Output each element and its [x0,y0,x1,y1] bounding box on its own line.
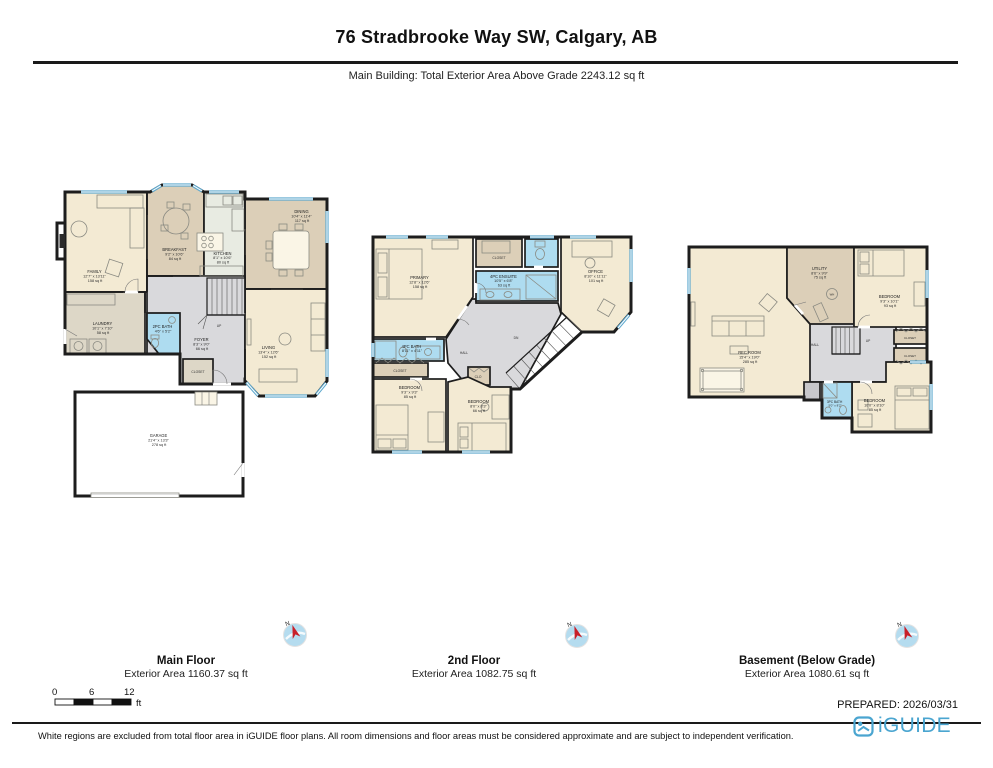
label-up: UP [217,324,222,328]
label-3pc-bath: 3PC BATH 5'0" x 8'2" [827,400,843,408]
footer-divider [12,722,981,724]
label-closet: CLOSET [191,370,204,374]
room-living [245,289,327,396]
compass-n-label: N [897,622,903,629]
page-title: 76 Stradbrooke Way SW, Calgary, AB [0,27,993,48]
second-floor-plan: PRIMARY 12'8" x 12'6" 158 sq ft CLOSET 4… [370,227,640,469]
label-clo: CLO [475,375,482,379]
label-bsmt-hall: HALL [811,343,819,347]
firebox [60,234,66,248]
compass-basement: N [892,620,922,650]
floor-area: Exterior Area 1080.61 sq ft [687,668,927,680]
label-bsmt-closet-1: CLOSET [904,336,916,340]
label-4pc-bath: 4PC BATH 8'11" x 4'11" [402,344,423,353]
main-floor-caption: Main Floor Exterior Area 1160.37 sq ft [66,655,306,680]
disclaimer-text: White regions are excluded from total fl… [38,731,794,741]
room-bsmt-bedroom-ne [854,247,927,327]
compass-main-floor: N [280,619,310,649]
label-utility: UTILITY 8'6" x 9'9" 75 sq ft [811,266,829,280]
main-floor-plan: FAMILY 12'7" x 13'11" 158 sq ft BREAKFAS… [55,181,333,501]
floor-area: Exterior Area 1160.37 sq ft [66,668,306,680]
floor-area: Exterior Area 1082.75 sq ft [354,668,594,680]
scale-tick-12: 12 [124,687,135,698]
label-bsmt-closet-2: CLOSET [904,354,916,358]
room-breakfast [147,185,204,276]
prepared-date: PREPARED: 2026/03/31 [837,699,958,711]
floor-name: 2nd Floor [354,655,594,667]
iguide-logo-text: iGUIDE [878,714,951,738]
scale-tick-0: 0 [52,687,57,698]
floorplan-sheet: 76 Stradbrooke Way SW, Calgary, AB Main … [0,0,993,768]
room-stair-closet [804,382,820,400]
page-subtitle: Main Building: Total Exterior Area Above… [0,70,993,82]
label-foyer: FOYER 8'3" x 9'0" 66 sq ft [193,337,211,351]
iguide-logo-icon [853,716,874,737]
label-dn: DN [514,336,519,340]
label-wh: WH [830,292,835,296]
room-wc [525,239,558,267]
scale-bar: 0 6 12 ft [50,686,170,716]
iguide-logo: iGUIDE [853,714,951,738]
compass-n-label: N [567,622,573,629]
basement-stairs [832,327,860,354]
scale-tick-6: 6 [89,687,94,698]
compass-n-label: N [285,621,291,628]
room-office [561,237,631,332]
label-2pc-bath: 2PC BATH 4'6" x 5'2" [153,324,174,333]
label-closet-top: CLOSET [492,256,505,260]
label-hall: HALL [460,351,468,355]
basement-plan: REC ROOM 15'4" x 19'0" 285 sq ft UTILITY… [682,242,942,440]
basement-caption: Basement (Below Grade) Exterior Area 108… [687,655,927,680]
label-bsmt-up: UP [866,339,871,343]
room-bedroom-right [448,377,511,452]
floor-name: Main Floor [66,655,306,667]
compass-second-floor: N [562,620,592,650]
title-divider [33,61,958,64]
floor-name: Basement (Below Grade) [687,655,927,667]
second-floor-caption: 2nd Floor Exterior Area 1082.75 sq ft [354,655,594,680]
label-closet-strip: CLOSET [393,369,406,373]
scale-unit: ft [136,698,142,709]
